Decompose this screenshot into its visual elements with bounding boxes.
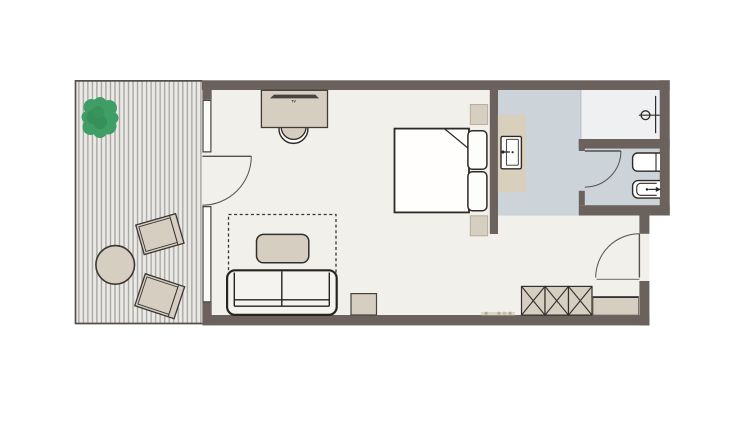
svg-text:TV: TV	[291, 100, 296, 104]
